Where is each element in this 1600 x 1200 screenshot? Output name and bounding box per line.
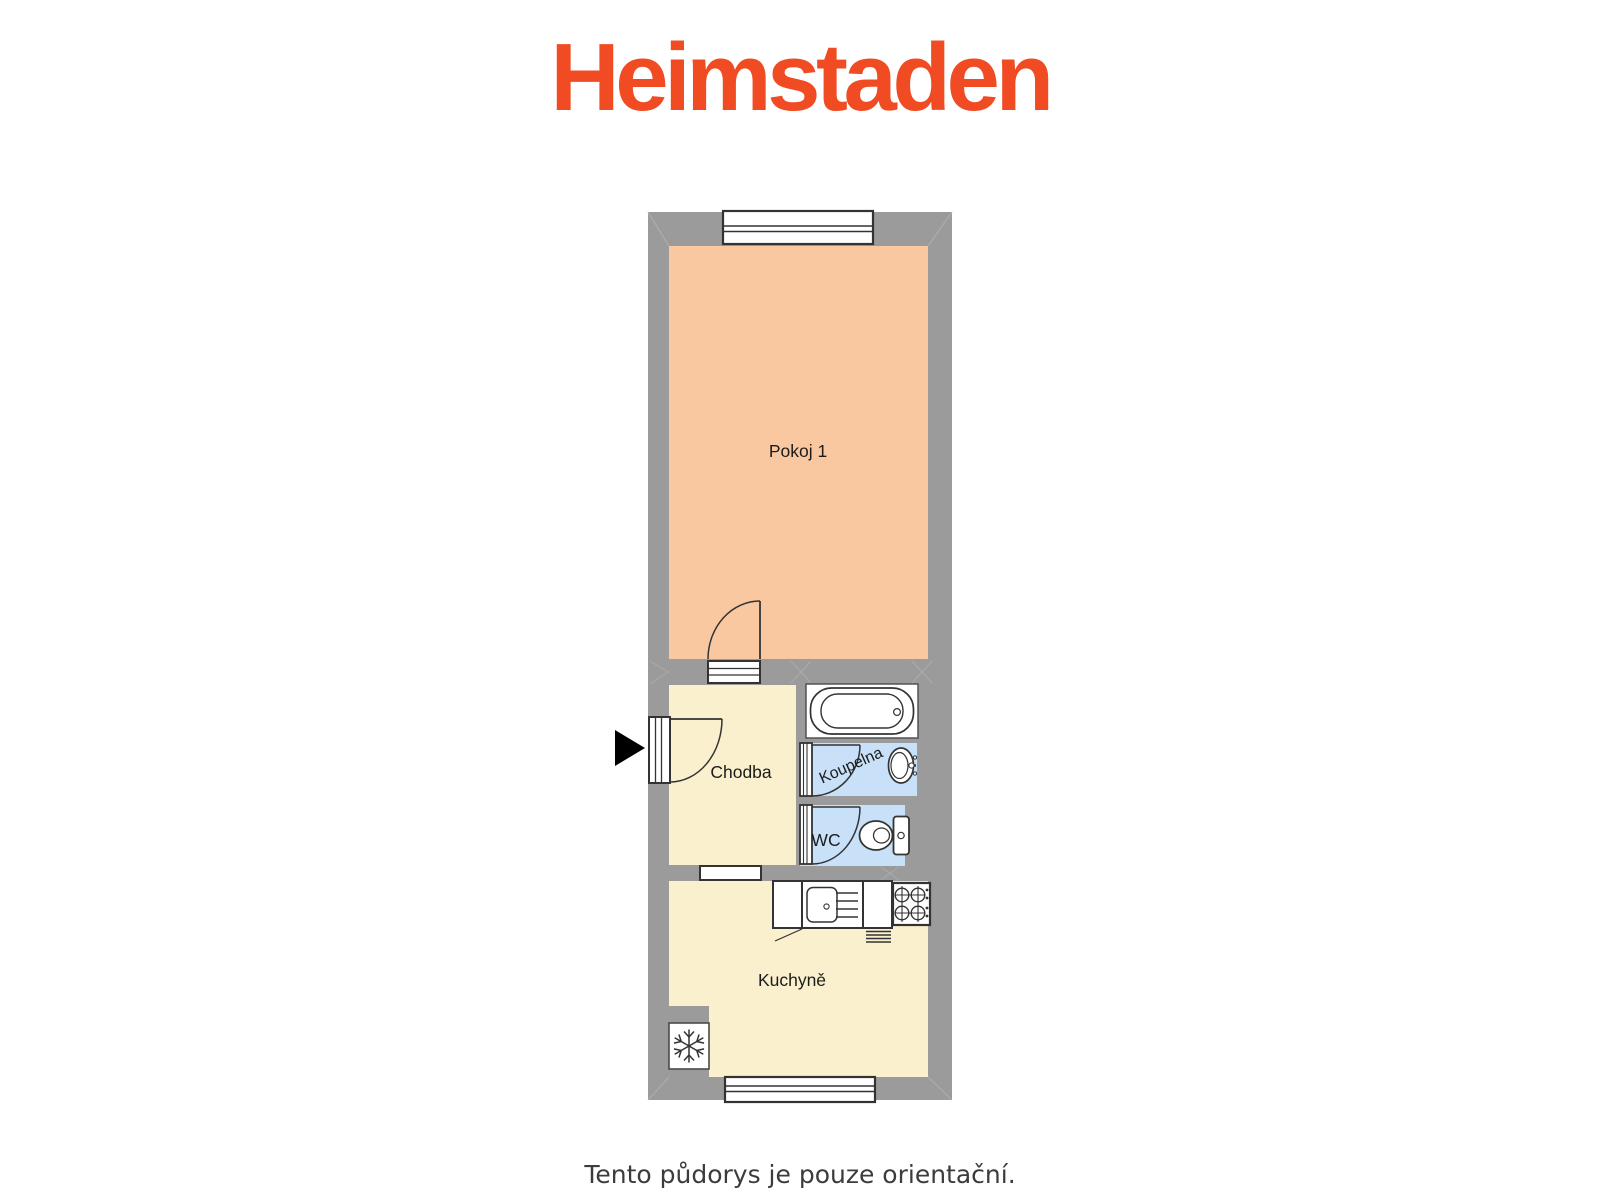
floor-plan: Pokoj 1 Chodba Koupelna WC Kuchyně — [0, 0, 1600, 1200]
freezer-icon — [669, 1023, 709, 1069]
room-label-kuchyne: Kuchyně — [758, 970, 826, 990]
window-top — [723, 211, 873, 244]
disclaimer-note: Tento půdorys je pouze orientační. — [0, 1160, 1600, 1189]
room-label-pokoj1: Pokoj 1 — [769, 441, 827, 461]
entrance-arrow-icon — [615, 730, 645, 766]
window-bottom — [725, 1077, 875, 1102]
kitchen-doorway — [700, 866, 761, 880]
stove-icon — [893, 883, 930, 925]
room-label-wc: WC — [811, 830, 840, 850]
room-label-chodba: Chodba — [710, 762, 772, 782]
bathtub-icon — [806, 684, 918, 738]
